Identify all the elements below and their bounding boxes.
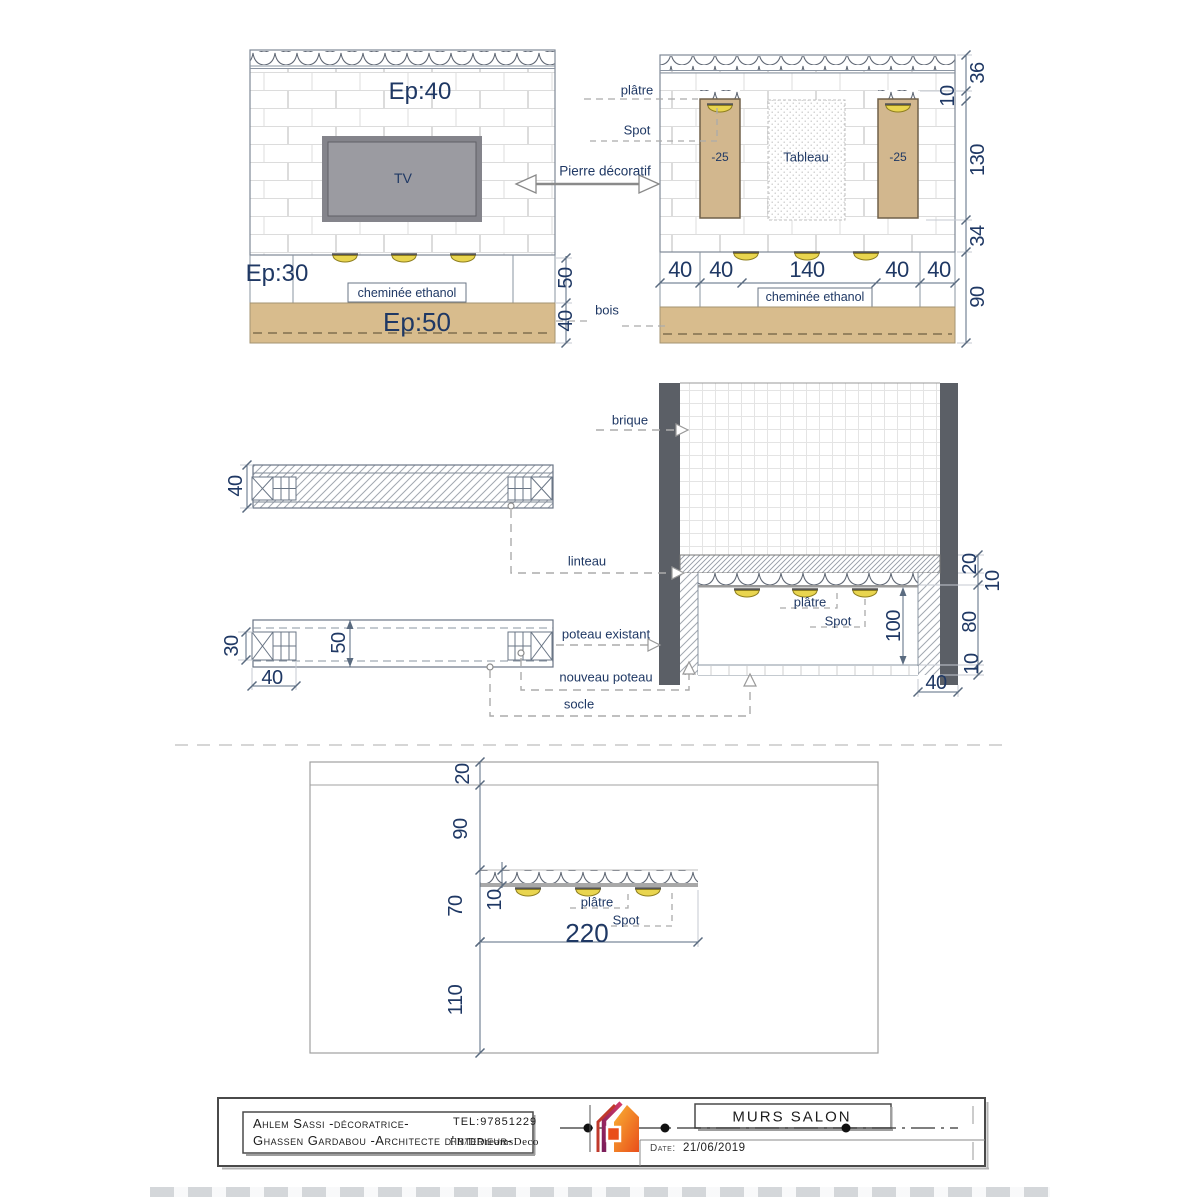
poteau-existant-label: poteau existant (562, 628, 650, 641)
dim-40: 40 (927, 259, 950, 281)
socle-label: socle (564, 698, 594, 711)
dim-130: 130 (968, 144, 988, 176)
platre-label: plâtre (581, 896, 614, 909)
spot-light-icon (332, 255, 358, 263)
dim-140: 140 (789, 259, 824, 281)
elevation-right-graphics (516, 51, 972, 348)
cheminee-ethanol-label: cheminée ethanol (766, 291, 865, 304)
dim-90: 90 (451, 818, 471, 839)
beam-plan-top-graphics (240, 461, 553, 513)
spot-light-icon (450, 255, 476, 263)
dim-10: 10 (485, 889, 505, 910)
tv-label: TV (394, 171, 412, 185)
dim-90: 90 (968, 286, 988, 307)
dim-36: 36 (968, 62, 988, 83)
drawing-linework (0, 0, 1200, 1200)
wall-section-graphics (659, 383, 984, 697)
linteau-label: linteau (568, 555, 606, 568)
bois-label: bois (595, 304, 619, 317)
dim-40: 40 (709, 259, 732, 281)
dim-100: 100 (884, 610, 904, 642)
ep30-label: Ep:30 (246, 262, 309, 286)
pierre-decoratif-label: Pierre décoratif (559, 164, 651, 178)
dim-10: 10 (962, 653, 982, 674)
spot-light-icon (391, 255, 417, 263)
dim-220: 220 (565, 920, 608, 946)
designer-name-line1: Ahlem Sassi -décoratrice- (253, 1117, 409, 1130)
platre-label: plâtre (794, 596, 827, 609)
dim-70: 70 (446, 895, 466, 916)
sheet-title: MURS SALON (732, 1110, 851, 1125)
niche-depth-label: -25 (889, 151, 906, 163)
beam-plan-bottom-graphics (238, 620, 553, 691)
ep40-label: Ep:40 (389, 80, 452, 104)
dim-40: 40 (226, 475, 246, 496)
platre-label: plâtre (621, 84, 654, 97)
spot-label: Spot (825, 615, 852, 628)
dim-80: 80 (960, 611, 980, 632)
spot-light-icon (734, 590, 760, 598)
dim-10: 10 (983, 570, 1003, 591)
spot-label: Spot (613, 914, 640, 927)
niche-depth-label: -25 (711, 151, 728, 163)
spot-light-icon (852, 590, 878, 598)
dim-34: 34 (968, 225, 988, 246)
dim-40: 40 (885, 259, 908, 281)
brique-label: brique (612, 414, 648, 427)
spot-label: Spot (624, 124, 651, 137)
dim-20: 20 (960, 553, 980, 574)
dim-40: 40 (556, 310, 576, 331)
ep50-label: Ep:50 (383, 309, 451, 335)
dim-40: 40 (925, 673, 946, 693)
architectural-drawing-sheet: Ep:40 TV Ep:30 cheminée ethanol Ep:50 50… (0, 0, 1200, 1200)
dim-30: 30 (222, 635, 242, 656)
cheminee-ethanol-label: cheminée ethanol (358, 287, 457, 300)
nouveau-poteau-label: nouveau poteau (559, 671, 652, 684)
date-value: 21/06/2019 (683, 1143, 746, 1155)
phone-number: TEL:97851229 (453, 1117, 537, 1128)
dim-50: 50 (556, 267, 576, 288)
dim-20: 20 (453, 763, 473, 784)
dim-50: 50 (329, 632, 349, 653)
date-label: Date: (650, 1144, 676, 1154)
dim-110: 110 (446, 985, 466, 1015)
facebook-handle: FB/DDreamsDeco (450, 1137, 539, 1148)
dim-40: 40 (668, 259, 691, 281)
spot-light-icon (733, 253, 759, 261)
spot-light-icon (853, 253, 879, 261)
scan-artifact-strip (150, 1187, 1050, 1197)
dim-40: 40 (261, 668, 282, 688)
tableau-label: Tableau (783, 151, 829, 164)
dim-10: 10 (938, 85, 958, 106)
